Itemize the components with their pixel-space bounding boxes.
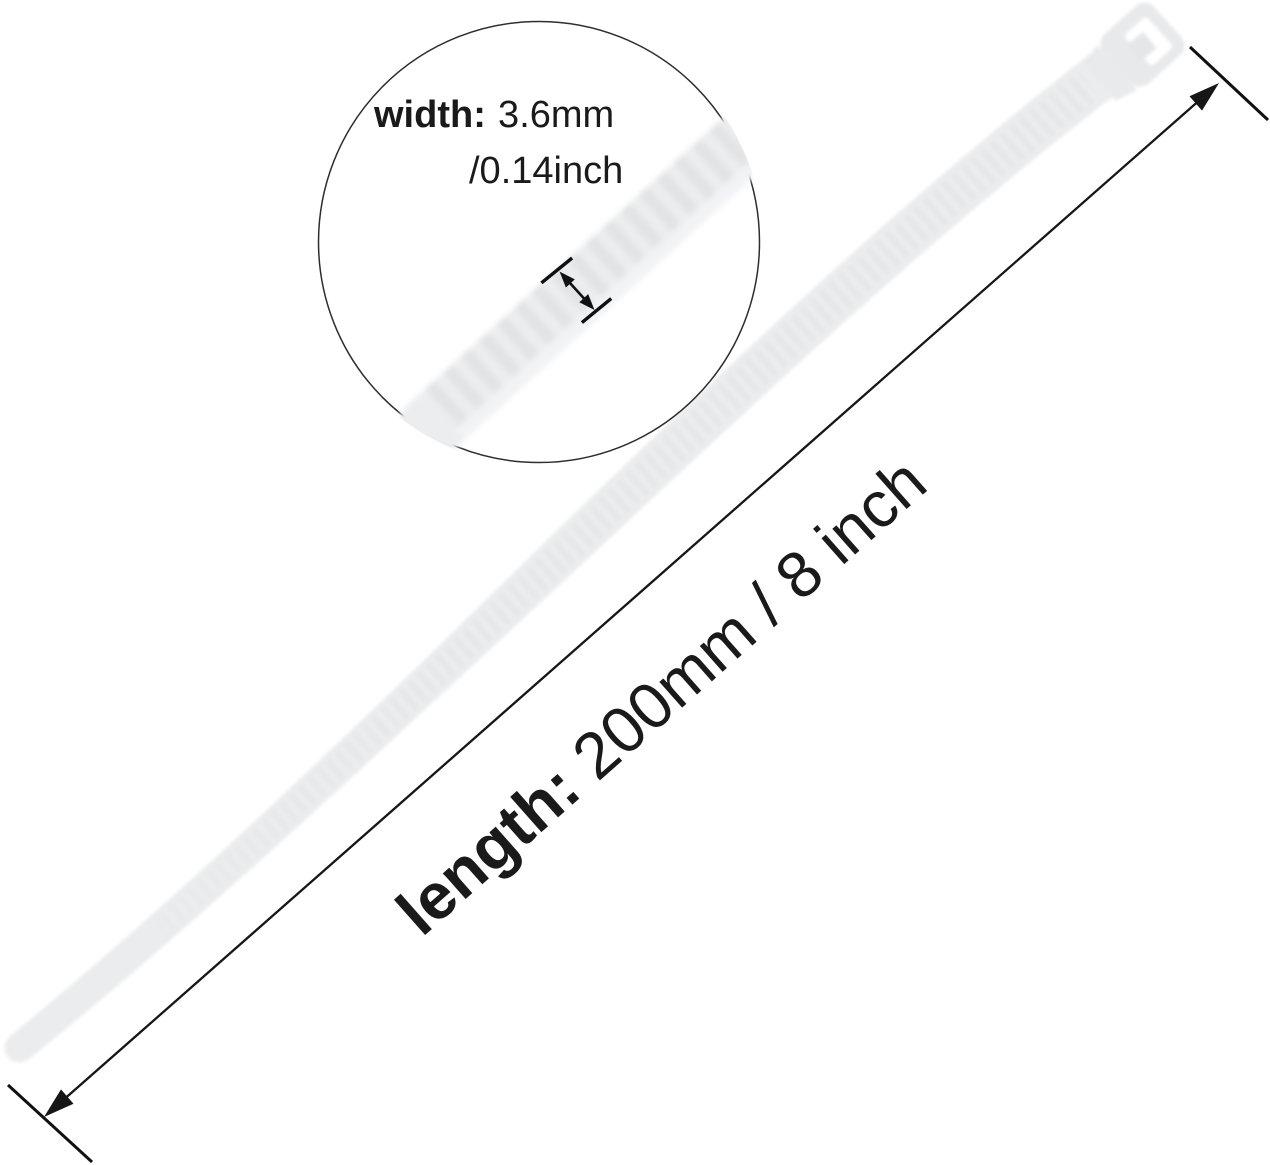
svg-text:/0.14inch: /0.14inch bbox=[469, 150, 623, 192]
svg-text:width: 3.6mm: width: 3.6mm bbox=[373, 94, 614, 136]
